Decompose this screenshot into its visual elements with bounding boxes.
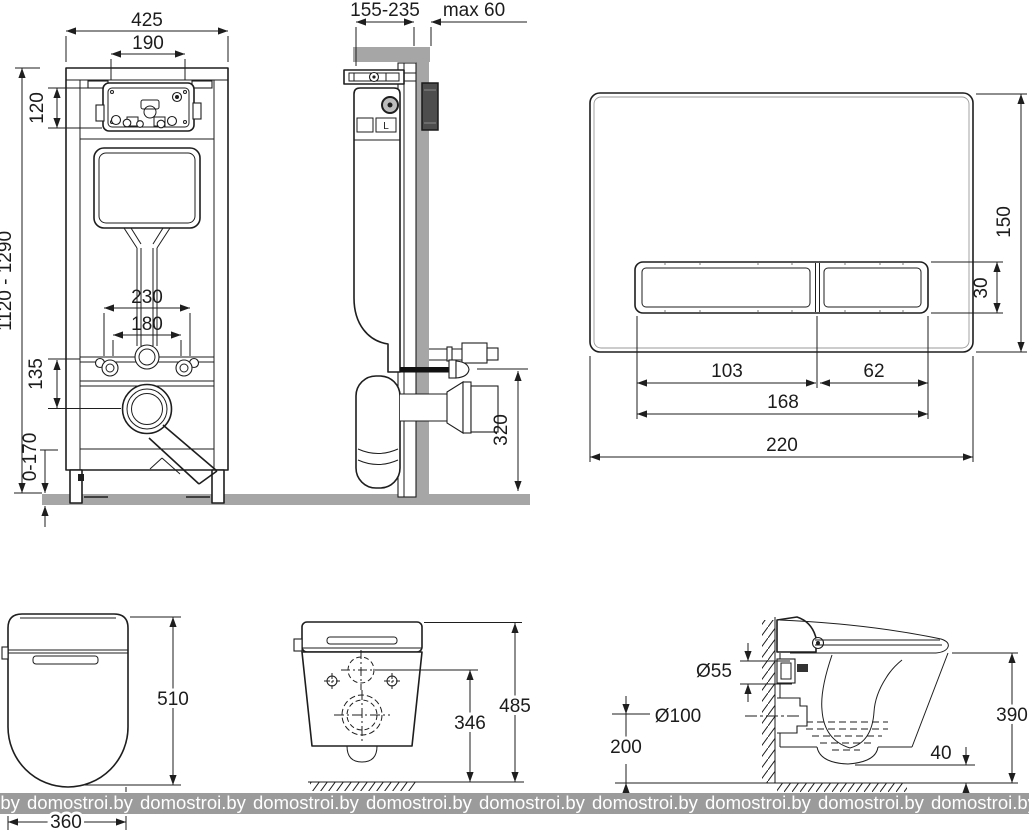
dim-holes-height: 346 bbox=[454, 713, 486, 734]
drain-trap-side bbox=[356, 376, 400, 488]
ceiling-slab bbox=[353, 47, 430, 62]
dim-install-height-range: 1120 - 1290 bbox=[0, 231, 16, 331]
watermark-text: domostroi.by bbox=[818, 792, 925, 813]
dim-plate-height: 150 bbox=[994, 206, 1015, 238]
dim-inlet-diameter: Ø55 bbox=[696, 661, 732, 682]
dim-drain-height: 320 bbox=[491, 414, 512, 446]
dim-depth-range: 155-235 bbox=[350, 0, 420, 21]
dim-leg-adjust: 0-170 bbox=[20, 433, 41, 482]
dim-button-large: 103 bbox=[711, 361, 743, 382]
watermark-text: domostroi.by bbox=[931, 792, 1029, 813]
dim-buttons-span: 168 bbox=[767, 392, 799, 413]
watermark-text: domostroi.by bbox=[366, 792, 473, 813]
watermark-text: domostroi.by bbox=[0, 792, 21, 813]
dim-clearance: 40 bbox=[930, 743, 951, 764]
dim-overall-height: 485 bbox=[499, 696, 531, 717]
flush-plate-view bbox=[590, 93, 973, 352]
cistern-side: L bbox=[354, 88, 400, 372]
dim-button-height: 30 bbox=[971, 277, 992, 298]
dim-bowl-width: 360 bbox=[50, 812, 82, 832]
dim-service-height: 120 bbox=[27, 92, 48, 124]
bowl-rear-view: 346 485 bbox=[294, 622, 531, 791]
dim-drain-offset: 135 bbox=[26, 358, 47, 390]
watermark-text: domostroi.by bbox=[592, 792, 699, 813]
dim-wall-max: max 60 bbox=[443, 0, 505, 21]
cistern-mark-label: L bbox=[383, 121, 389, 132]
watermark-text: domostroi.by bbox=[253, 792, 360, 813]
watermark-text: domostroi.by bbox=[27, 792, 134, 813]
technical-drawing-sheet: 425 190 120 1120 - 1290 230 180 135 0-17… bbox=[0, 0, 1029, 832]
floor-slab bbox=[42, 494, 530, 505]
dim-fixing-span-inner: 180 bbox=[131, 314, 163, 335]
dim-fixing-span-outer: 230 bbox=[131, 287, 163, 308]
dim-button-small: 62 bbox=[863, 361, 884, 382]
watermark-text: domostroi.by bbox=[479, 792, 586, 813]
flush-buttons-frame bbox=[635, 262, 928, 313]
dim-plate-width: 220 bbox=[766, 435, 798, 456]
watermark-text: domostroi.by bbox=[705, 792, 812, 813]
flush-plate-side bbox=[422, 83, 438, 130]
dim-outlet-axis-height: 200 bbox=[610, 737, 642, 758]
dim-bowl-length: 510 bbox=[157, 689, 189, 710]
service-opening bbox=[96, 83, 201, 131]
bowl-top-view: 510 bbox=[2, 614, 189, 787]
dim-bowl-height: 390 bbox=[996, 705, 1028, 726]
watermark-text: domostroi.by bbox=[140, 792, 247, 813]
water-supply-fitting bbox=[429, 343, 498, 363]
dim-service-width: 190 bbox=[132, 33, 164, 54]
frame-latch bbox=[78, 474, 84, 481]
bowl-side-view: Ø55 Ø100 200 390 40 bbox=[610, 617, 1028, 801]
dim-outlet-diameter: Ø100 bbox=[655, 706, 701, 727]
mounting-clamp bbox=[797, 664, 808, 672]
frame-front-view bbox=[66, 68, 228, 503]
frame-side-view: L bbox=[344, 47, 498, 503]
dim-frame-width: 425 bbox=[131, 10, 163, 31]
watermark-band: domostroi.by domostroi.by domostroi.by d… bbox=[0, 792, 1029, 814]
